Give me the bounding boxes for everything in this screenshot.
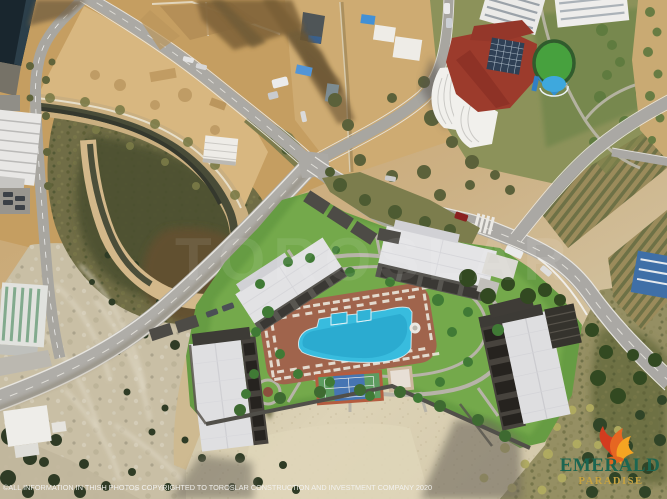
svg-text:PARADISE: PARADISE xyxy=(579,476,644,487)
svg-text:TOROSLAR: TOROSLAR xyxy=(175,226,575,293)
svg-text:©ALL INFORMATION IN THISH PHOT: ©ALL INFORMATION IN THISH PHOTOS COPYRIG… xyxy=(3,483,432,492)
svg-text:EMERALD: EMERALD xyxy=(560,455,661,476)
